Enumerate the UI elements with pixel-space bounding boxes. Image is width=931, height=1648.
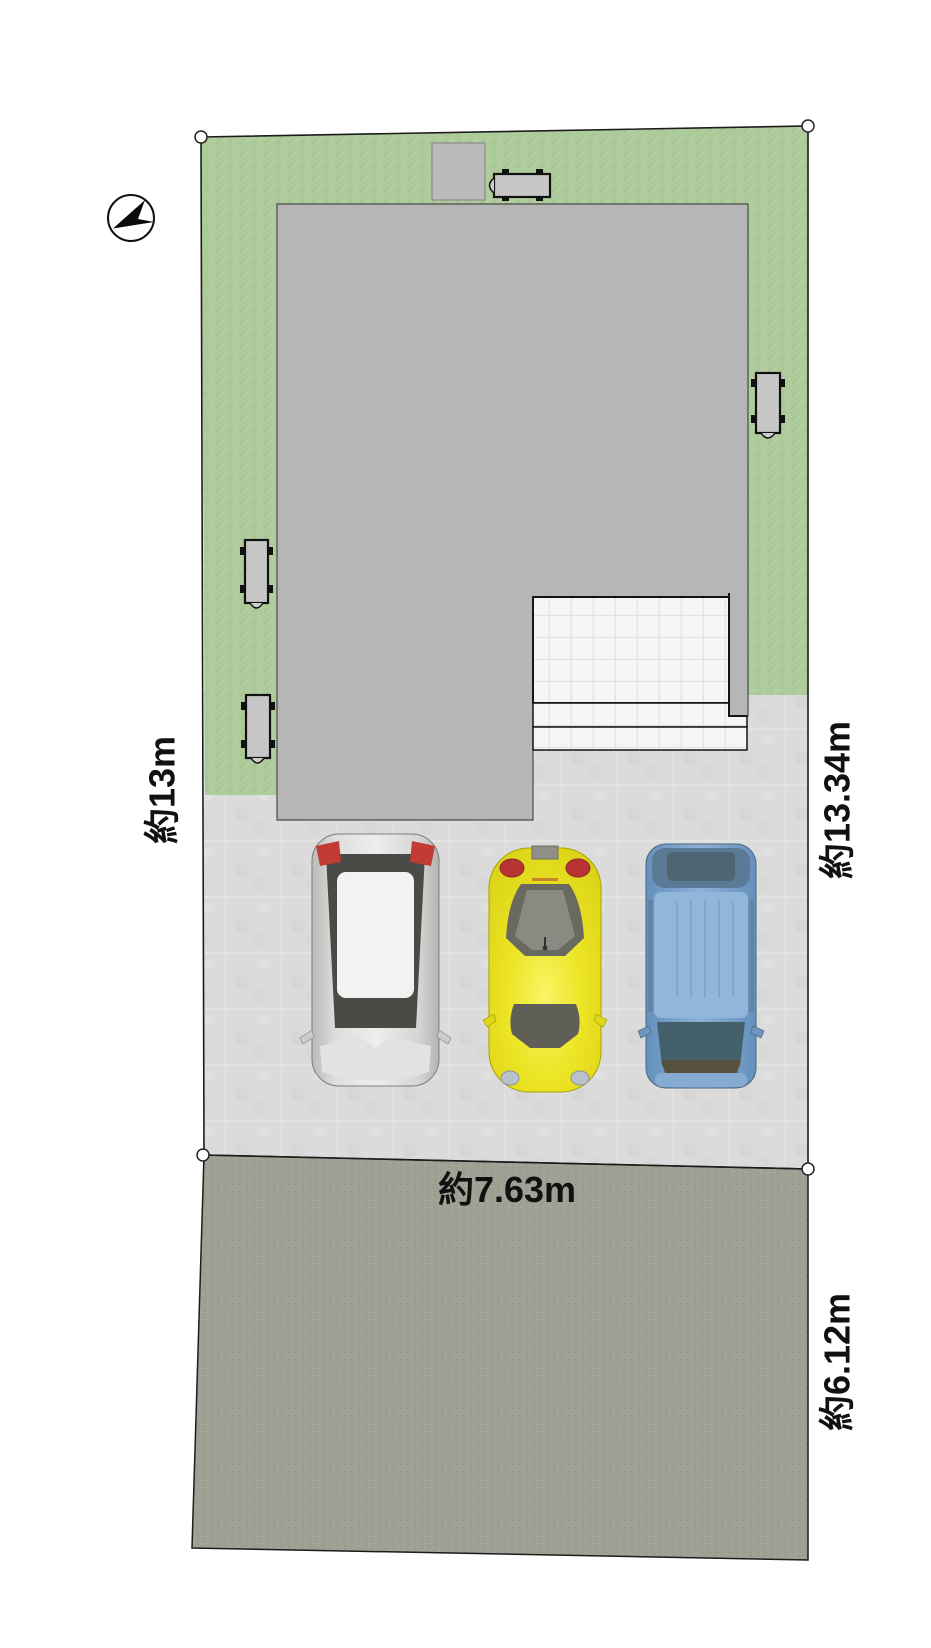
dimension-east: 約13.34m bbox=[817, 721, 858, 879]
car-yellow-coupe bbox=[483, 846, 607, 1092]
north-arrow-icon bbox=[108, 195, 154, 241]
ac-unit-left-lower bbox=[241, 695, 275, 763]
car-blue-minivan bbox=[638, 844, 764, 1088]
ac-unit-left-upper bbox=[240, 540, 273, 608]
storage-shed bbox=[432, 143, 485, 200]
dimension-west: 約13m bbox=[142, 736, 183, 844]
survey-marker-bottom-right bbox=[802, 1163, 814, 1175]
survey-marker-top-right bbox=[802, 120, 814, 132]
road-area bbox=[192, 1155, 808, 1560]
site-plan-drawing: 約13m 約13.34m 約7.63m 約6.12m bbox=[0, 0, 931, 1648]
entrance-step-lower bbox=[533, 727, 747, 750]
entrance-step-upper bbox=[533, 703, 747, 727]
survey-marker-top-left bbox=[195, 131, 207, 143]
car-white-hatchback bbox=[300, 834, 451, 1086]
survey-marker-bottom-left bbox=[197, 1149, 209, 1161]
dimension-frontage: 約7.63m bbox=[438, 1169, 576, 1210]
site-plan-canvas: 約13m 約13.34m 約7.63m 約6.12m bbox=[0, 0, 931, 1648]
dimension-road-east: 約6.12m bbox=[817, 1293, 858, 1431]
ac-unit-right bbox=[751, 373, 785, 438]
entrance-porch-tiles bbox=[533, 597, 729, 703]
ac-unit-top bbox=[490, 169, 551, 201]
